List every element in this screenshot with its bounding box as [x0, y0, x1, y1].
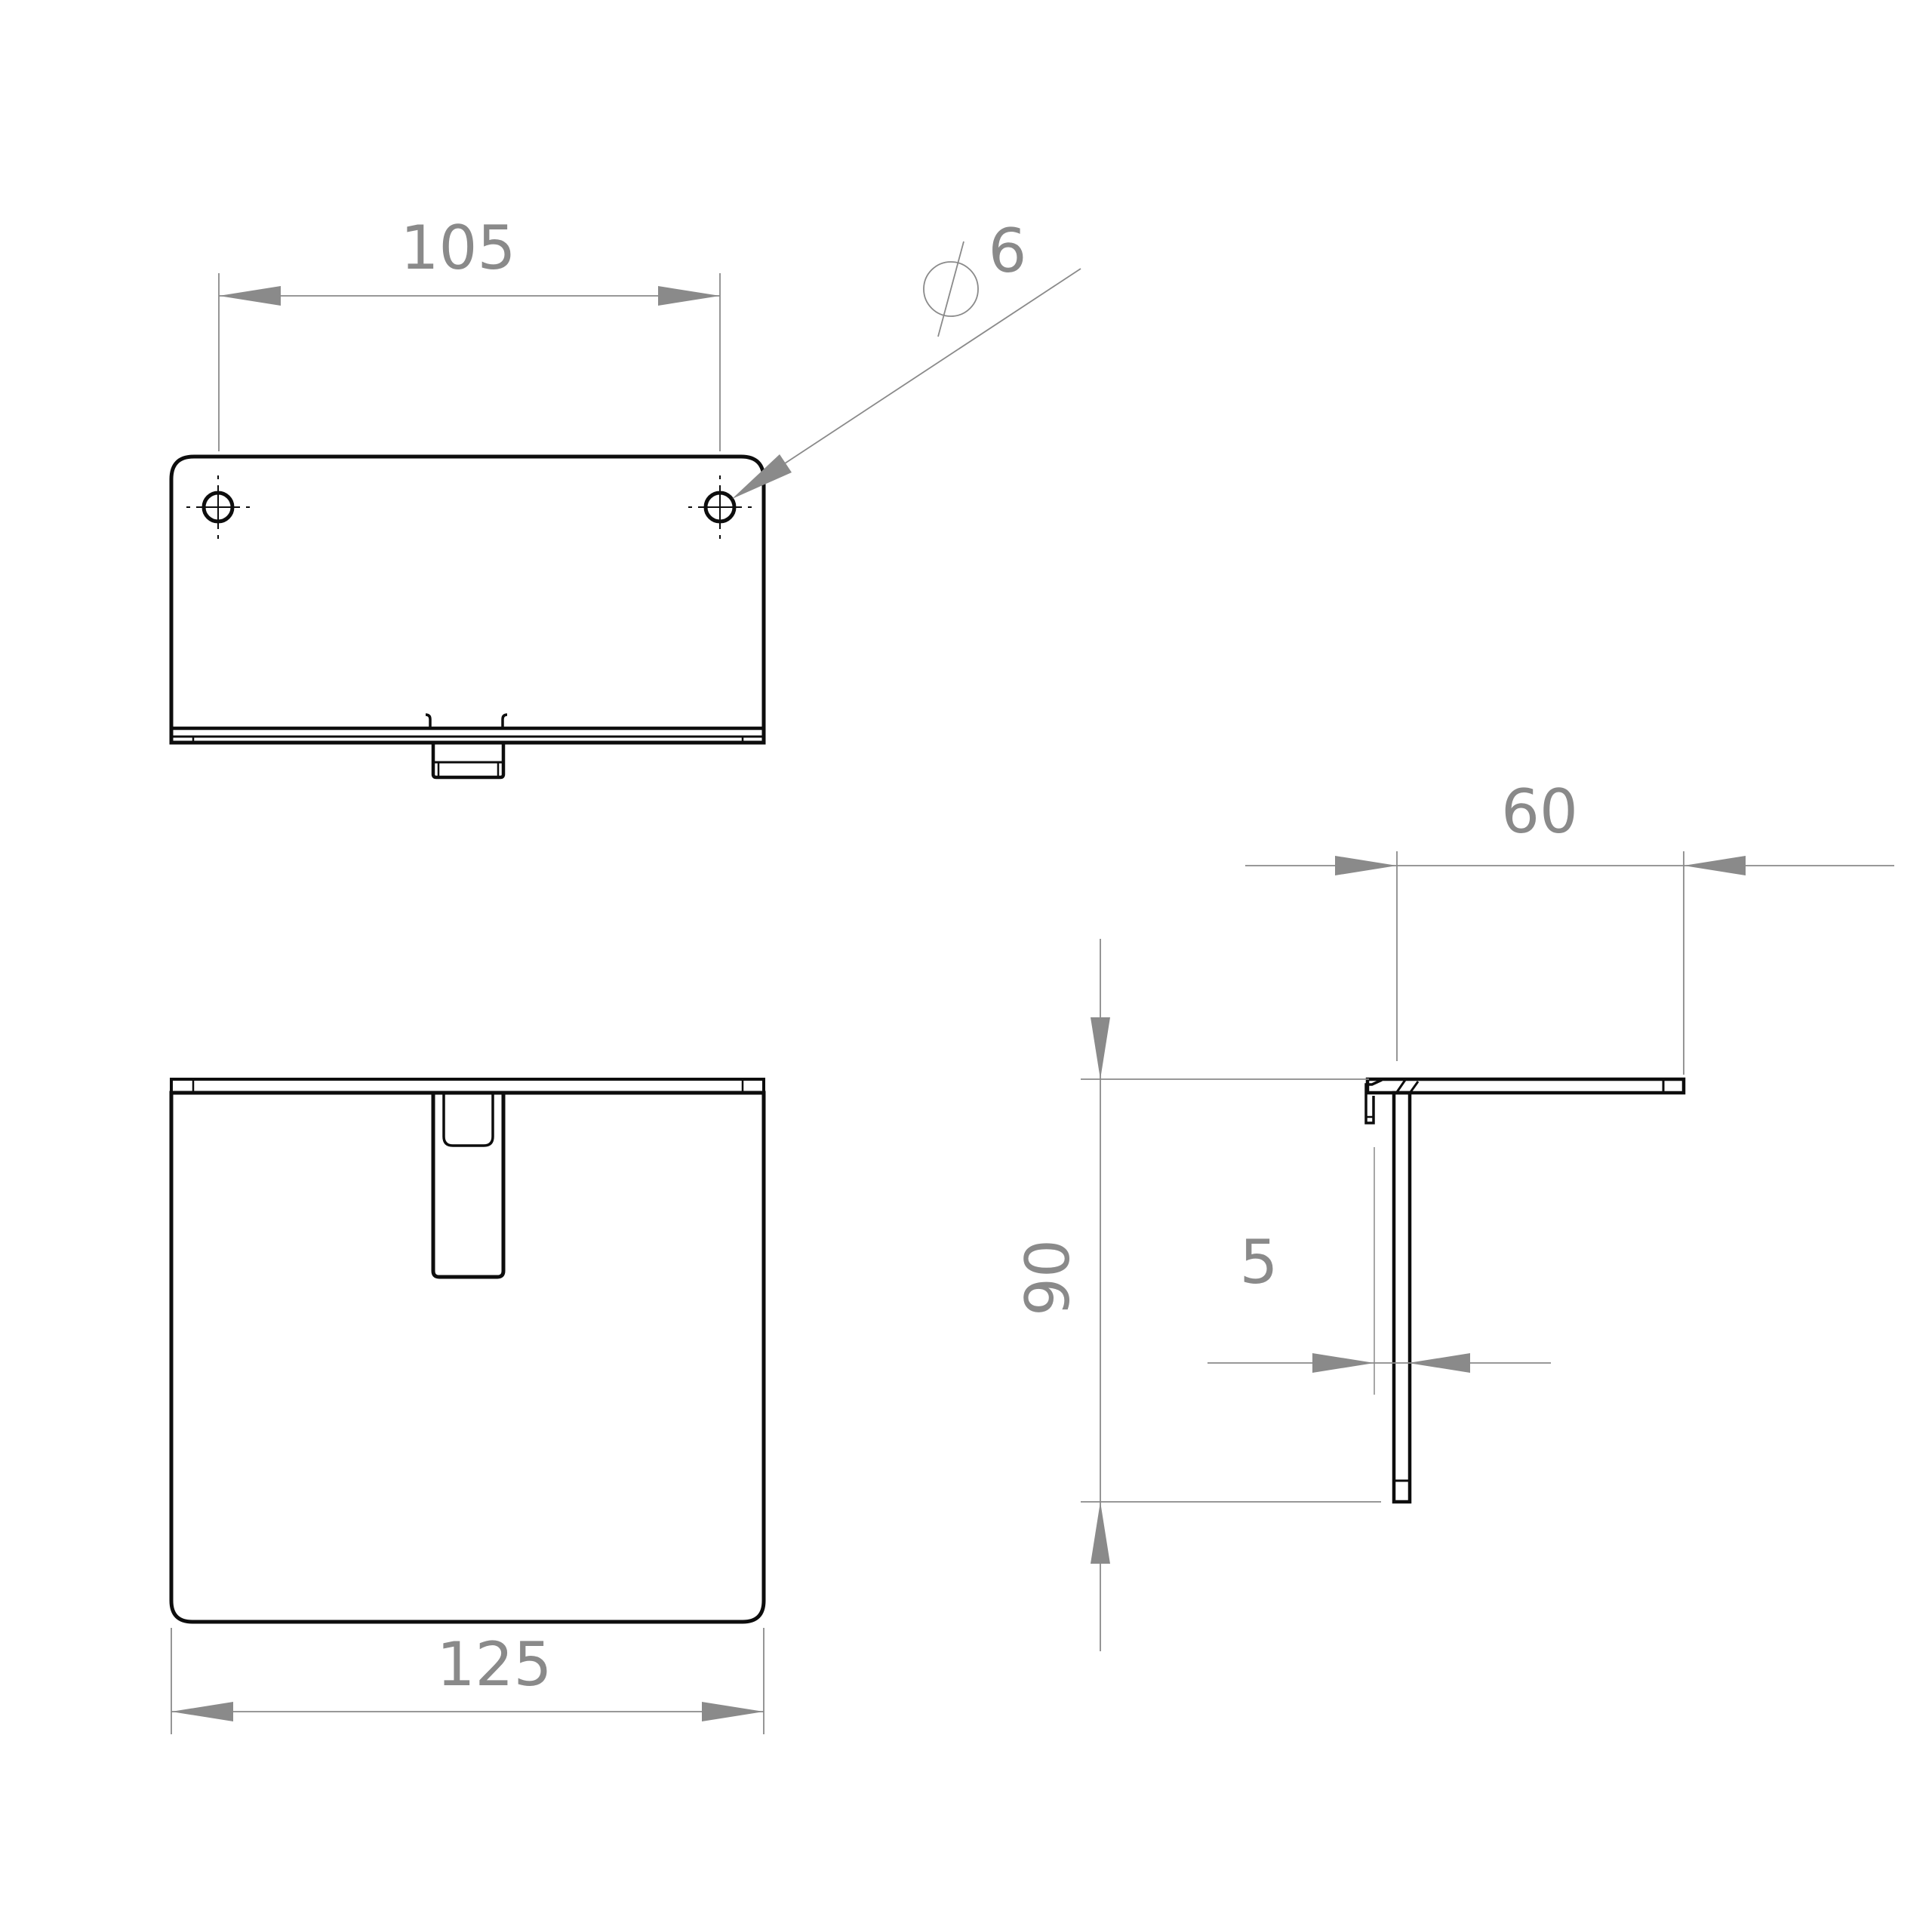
dia6-leader-line	[785, 269, 1081, 463]
dim-5-arrow-left	[1312, 1353, 1374, 1373]
dim-90-arrow-top	[1091, 1017, 1110, 1079]
dim-5-text: 5	[1240, 1227, 1278, 1297]
diameter-symbol	[924, 241, 978, 337]
front-view-outline	[171, 1093, 764, 1622]
top-view	[171, 457, 764, 777]
dim-depth: 60	[1245, 777, 1894, 1075]
side-view-leg	[1394, 1093, 1410, 1502]
dim-5-arrow-right	[1408, 1353, 1470, 1373]
dim-105-arrow-right	[658, 286, 720, 306]
dim-hole-spacing: 105	[219, 213, 720, 451]
top-view-outline	[171, 457, 764, 743]
slot-hook-left	[426, 715, 430, 728]
dim-90-text: 90	[1013, 1239, 1083, 1316]
technical-drawing-page: 105 6 125	[0, 0, 1932, 1932]
side-leg-bend-2	[1411, 1081, 1418, 1092]
dim-hole-diameter: 6	[732, 216, 1081, 499]
dim-60-text: 60	[1501, 777, 1578, 847]
hole-right	[688, 475, 752, 539]
dim-125-arrow-right	[702, 1702, 764, 1721]
dim-90-arrow-bottom	[1091, 1502, 1110, 1564]
slot-hook-right	[503, 715, 507, 728]
dim-height: 90	[1013, 939, 1381, 1651]
dim-105-arrow-left	[219, 286, 281, 306]
dim-60-arrow-left	[1335, 856, 1397, 875]
dim-thickness: 5	[1207, 1147, 1551, 1395]
hole-left	[186, 475, 250, 539]
dim-overall-width: 125	[171, 1628, 764, 1734]
bracket-drawing: 105 6 125	[0, 0, 1932, 1932]
front-view-tab-bend	[444, 1093, 493, 1146]
front-view	[171, 1079, 764, 1622]
top-view-tab	[433, 743, 503, 777]
front-view-strip	[171, 1079, 764, 1093]
dia6-text: 6	[989, 216, 1027, 286]
dim-125-arrow-left	[171, 1702, 233, 1721]
side-view	[1366, 1079, 1684, 1502]
dim-125-text: 125	[437, 1629, 552, 1700]
dim-105-text: 105	[401, 213, 516, 283]
side-leg-bend-1	[1397, 1080, 1405, 1092]
dim-60-arrow-right	[1684, 856, 1746, 875]
